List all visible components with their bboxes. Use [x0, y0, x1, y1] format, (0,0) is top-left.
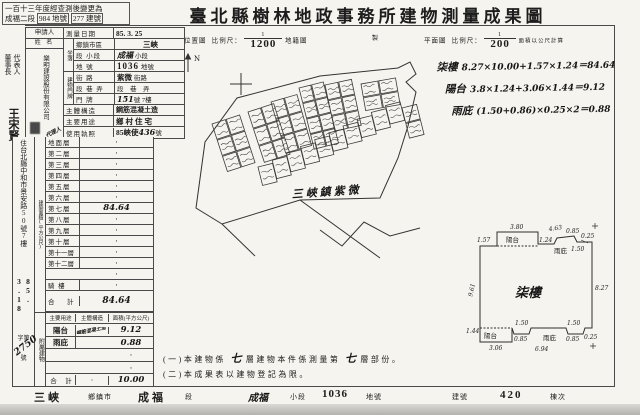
floor-label: 地面層	[46, 137, 80, 147]
parcel-value: 1036 地號	[115, 61, 184, 71]
floor-value: ·	[80, 214, 153, 224]
footnotes: (一)本建物係 七 層建物本件係測量第 七 層部份。 (二)本成果表以建物登記為…	[163, 351, 463, 382]
room-label: 柒樓	[515, 285, 543, 301]
annex-area: 0.88	[109, 338, 153, 348]
floor-value: ·	[80, 236, 153, 246]
footer-town-label: 鄉鎮市	[88, 392, 112, 402]
door-suffix: 號 7樓	[134, 97, 152, 104]
annex-header-row: 主要用途 主體構造 面積(平方公尺)	[46, 313, 153, 324]
floor-label: 第八層	[46, 214, 80, 224]
floor-label: 第六層	[46, 192, 80, 202]
footer-building-no: 420	[500, 389, 523, 401]
floor-rows: 地面層· 第二層· 第三層· 第四層· 第五層· 第六層· 第七層84.64 第…	[46, 137, 153, 312]
floor-label: 第二層	[46, 148, 80, 158]
annex-row-balcony: 陽台 鋼筋混凝土造 9.12	[46, 324, 153, 337]
town-row: 鄉鎮市區 三峽	[74, 39, 184, 50]
road-line-2	[222, 224, 255, 256]
survey-date-label: 測量日期	[64, 28, 114, 38]
footer-section: 成福	[138, 389, 166, 405]
dim-1-24: 1.24	[539, 237, 553, 244]
floor-value: ·	[80, 225, 153, 235]
annex-total-structure: ·	[76, 376, 109, 385]
floor-total-value: 84.64	[80, 296, 153, 306]
company-seal	[30, 122, 40, 134]
annex-area: ·	[109, 350, 153, 360]
applicant-name-col2: 股份有限公司	[41, 81, 49, 120]
applicant-name-col1: 樂明建設	[41, 55, 49, 81]
floor-label: 第七層	[46, 203, 80, 213]
dim-0-85-top: 0.85	[566, 228, 580, 235]
street-row: 街 路 紫微 街路	[74, 72, 184, 83]
footer-subsection: 成福	[248, 389, 268, 404]
floor-plan: 陽台 陽台 雨庇 雨庇 柒樓 1.57 3.80 1.24 4.63 0.85 …	[435, 218, 635, 363]
dim-0-85-b2: 0.85	[566, 336, 580, 343]
dim-0-85-b1: 0.85	[514, 336, 528, 343]
residence-label: 住	[13, 137, 34, 146]
street-label: 街 路	[74, 72, 115, 82]
floor-value: ·	[80, 269, 153, 279]
balcony-top-label: 陽台	[506, 235, 519, 244]
license-prefix: 85峽使	[116, 128, 139, 137]
footer-subsection-label: 小段	[290, 392, 306, 402]
door-group: 建物門牌 街 路 紫微 街路 段 巷 弄 段 巷 弄 門 牌 151號 7樓	[64, 72, 184, 105]
calc-formula-balcony: 3.8×1.24+3.06×1.44＝9.12	[470, 83, 605, 95]
amendment-parcel: 984 地號	[37, 13, 69, 24]
annex-row-blank: ·	[46, 349, 153, 362]
lane-row: 段 巷 弄 段 巷 弄	[74, 83, 184, 94]
building-units	[212, 78, 424, 186]
calc-line-7f: 柒樓8.27×10.00+1.57×1.24＝84.64	[436, 54, 636, 79]
street-name: 紫微	[117, 73, 132, 82]
area-table: 住 台北縣中和市景安路50號7樓 85. 3.18 字第 2750 號 建築面積…	[12, 137, 154, 387]
usage-row: 主要用途 鄉村住宅	[64, 116, 184, 127]
survey-document-page: 一百十三年度經查測後變更為 成福二段 984 地號 277 建號 臺北縣樹林地政…	[0, 0, 640, 415]
footnote-1: (一)本建物係 七 層建物本件係測量第 七 層部份。	[163, 351, 463, 367]
structure-label: 主體構造	[64, 105, 114, 115]
section-name: 成福	[117, 50, 133, 60]
drawn-by-label: 製	[372, 33, 379, 42]
section-suffix: 小段	[135, 53, 148, 60]
door-group-label: 建物門牌	[64, 72, 74, 104]
footnote-1-mid: 層建物本件係測量第	[246, 355, 341, 364]
rep-title-2: 董事長	[4, 54, 12, 106]
floor-value: ·	[80, 170, 153, 180]
annex-header-use: 主要用途	[46, 314, 76, 322]
footnote-2: (二)本成果表以建物登記為限。	[163, 367, 463, 382]
floor-label: 第三層	[46, 159, 80, 169]
door-value: 151號 7樓	[115, 94, 184, 104]
location-group: 坐落 鄉鎮市區 三峽 段 小段 成福 小段 地 號 1036 地號	[64, 39, 184, 72]
amendment-building-no: 277 建號	[71, 13, 103, 24]
parcel-row: 地 號 1036 地號	[74, 61, 184, 71]
floor-value: ·	[80, 258, 153, 268]
floor-area-section: 建築面積(平方公尺) 地面層· 第二層· 第三層· 第四層· 第五層· 第六層·…	[35, 137, 153, 312]
annex-row-canopy: 雨庇 0.88	[46, 337, 153, 350]
floor-total-label: 合 計	[46, 296, 80, 306]
applicant-column: 申請人 姓 名 樂明建設 股份有限公司 代理人	[26, 28, 64, 138]
location-group-label: 坐落	[64, 39, 74, 71]
section-row: 段 小段 成福 小段	[74, 50, 184, 61]
door-number: 151	[117, 94, 134, 104]
floor-value: ·	[80, 280, 153, 290]
dim-1-50-top: 1.50	[571, 246, 585, 253]
floor-total-row: 合 計 84.64	[46, 291, 153, 312]
lane-value: 段 巷 弄	[115, 83, 184, 93]
plan-scale-label: 比例尺：	[452, 37, 482, 44]
annex-area: ·	[109, 363, 153, 373]
calc-formula-canopy: (1.50+0.86)×0.25×2＝0.88	[476, 105, 610, 117]
annex-area: 9.12	[109, 325, 153, 335]
floor-label: 騎 樓	[46, 280, 80, 290]
receive-date-stamp: 85. 3.18	[15, 277, 33, 333]
amendment-note: 一百十三年度經查測後變更為 成福二段 984 地號 277 建號	[2, 2, 130, 25]
floor-label: 第十二層	[46, 258, 80, 268]
amendment-section: 成福二段	[5, 14, 35, 23]
location-map-label: 位置圖	[184, 37, 207, 44]
location-map: N 三峽鎮紫微	[180, 46, 442, 276]
cadastral-map-label: 地籍圖	[285, 37, 308, 44]
annex-header-area: 面積(平方公尺)	[109, 314, 153, 322]
annex-total-row: 合 計 · 10.00	[46, 374, 153, 386]
footnote-1-post: 層部份。	[360, 355, 402, 364]
floor-plan-label: 平面圖	[424, 37, 447, 44]
canopy-top-label: 雨庇	[554, 246, 568, 255]
annex-group-label: 附屬建物	[35, 313, 46, 386]
floor-value: ·	[80, 192, 153, 202]
calc-formula-7f: 8.27×10.00+1.57×1.24＝84.64	[462, 61, 616, 74]
dim-3-80: 3.80	[510, 224, 524, 231]
floor-area-group-label: 建築面積(平方公尺)	[35, 137, 46, 312]
amendment-note-line2: 成福二段 984 地號 277 建號	[5, 14, 127, 24]
dim-8-27: 8.27	[595, 285, 609, 292]
applicant-name: 樂明建設 股份有限公司	[40, 51, 50, 123]
floor-label: 第四層	[46, 170, 80, 180]
street-suffix: 街路	[134, 75, 147, 82]
dim-4-63: 4.63	[547, 224, 562, 233]
floor-value: ·	[80, 159, 153, 169]
usage-value: 鄉村住宅	[114, 116, 184, 127]
floor-value: ·	[80, 137, 153, 147]
lane-label: 段 巷 弄	[74, 83, 115, 93]
address-column: 住 台北縣中和市景安路50號7樓 85. 3.18 字第 2750 號	[13, 137, 35, 386]
applicant-subheader: 姓 名	[26, 39, 63, 49]
area-unit-note: 面積以公尺計算	[519, 38, 565, 44]
license-suffix: 號	[155, 130, 162, 137]
town-value: 三峽	[115, 39, 184, 50]
plan-scale-fraction: 1200	[484, 32, 516, 50]
footer-town: 三峽	[34, 389, 62, 405]
rep-title-1: 代表人	[13, 54, 21, 106]
door-row: 門 牌 151號 7樓	[74, 94, 184, 104]
canopy-bottom-label: 雨庇	[543, 333, 557, 342]
area-calculations: 柒樓8.27×10.00+1.57×1.24＝84.64 陽台3.8×1.24+…	[436, 54, 637, 123]
section-label: 段 小段	[74, 50, 115, 60]
license-number: 436	[139, 127, 156, 137]
footnote-1-pre: (一)本建物係	[163, 355, 226, 364]
footer-unit-label: 棟次	[550, 392, 566, 402]
floor-value: ·	[80, 181, 153, 191]
border-top	[25, 25, 615, 26]
floor-label: 第十層	[46, 236, 80, 246]
footnote-1-floor: 七	[230, 352, 241, 365]
license-label: 使用執照	[64, 128, 114, 138]
annex-total-label: 合 計	[46, 375, 76, 385]
dim-1-50-b1: 1.50	[515, 320, 529, 327]
usage-label: 主要用途	[64, 116, 114, 126]
footer-section-label: 段	[185, 392, 193, 402]
dim-0-25-top: 0.25	[581, 233, 595, 240]
dim-0-25-b: 0.25	[584, 334, 598, 341]
balcony-bottom-label: 陽台	[484, 331, 497, 340]
survey-date-row: 測量日期 85. 3. 25	[64, 28, 184, 39]
door-label: 門 牌	[74, 94, 115, 104]
footer-building-label: 建號	[452, 392, 468, 402]
footnote-1-floor2: 七	[345, 352, 356, 365]
floor-value: ·	[80, 247, 153, 257]
applicant-header: 申請人	[26, 28, 63, 39]
floor-plan-scale: 平面圖 比例尺： 1200 面積以公尺計算	[424, 32, 564, 50]
annex-header-structure: 主體構造	[76, 314, 109, 322]
info-table: 申請人 姓 名 樂明建設 股份有限公司 代理人 測量日期 85. 3. 25 坐…	[25, 27, 185, 139]
annex-structure-text: 鋼筋混凝土造	[76, 327, 106, 334]
annex-total-value: 10.00	[109, 375, 153, 385]
calc-label-canopy: 雨庇	[451, 105, 472, 117]
floor-value-7f: 84.64	[80, 203, 153, 213]
applicant-address: 台北縣中和市景安路50號7樓	[19, 146, 28, 274]
location-scale-label: 比例尺：	[212, 37, 242, 44]
floor-label: 第五層	[46, 181, 80, 191]
annex-use: 陽台	[46, 325, 76, 336]
annex-row-blank: ·	[46, 362, 153, 375]
dim-6-94: 6.94	[535, 346, 549, 353]
north-arrow-head	[186, 54, 191, 59]
street-value: 紫微 街路	[115, 72, 184, 83]
parcel-suffix: 地號	[141, 64, 154, 71]
footer-parcel: 1036	[322, 388, 348, 400]
dim-1-57: 1.57	[477, 237, 491, 244]
survey-date-value: 85. 3. 25	[114, 29, 184, 38]
floor-label: 第九層	[46, 225, 80, 235]
footer-parcel-label: 地號	[366, 392, 382, 402]
parcel-number: 1036	[117, 61, 139, 71]
north-label: N	[194, 55, 200, 63]
section-value: 成福 小段	[115, 50, 184, 61]
annex-use: 雨庇	[46, 337, 76, 348]
representative-label: 代表人 董事長	[3, 54, 22, 106]
dim-9-61: 9.61	[467, 283, 477, 298]
structure-row: 主體構造 鋼筋混凝土造	[64, 105, 184, 116]
road-line-1	[300, 200, 380, 258]
scan-edge	[0, 404, 640, 415]
scale-denominator: 200	[484, 38, 516, 50]
calc-label-balcony: 陽台	[445, 83, 466, 95]
dim-3-06: 3.06	[489, 345, 503, 352]
calc-line-canopy: 雨庇(1.50+0.86)×0.25×2＝0.88	[437, 98, 637, 123]
parcel-label: 地 號	[74, 61, 115, 71]
page-title: 臺北縣樹林地政事務所建物測量成果圖	[138, 2, 598, 27]
structure-value: 鋼筋混凝土造	[114, 105, 184, 115]
floor-label: 第十一層	[46, 247, 80, 257]
annex-section: 附屬建物 主要用途 主體構造 面積(平方公尺) 陽台 鋼筋混凝土造 9.12 雨…	[35, 312, 153, 386]
town-label: 鄉鎮市區	[74, 39, 115, 49]
annex-structure: 鋼筋混凝土造	[76, 327, 109, 334]
dim-1-44: 1.44	[466, 328, 480, 335]
dim-1-50-b2: 1.50	[567, 320, 581, 327]
floor-value: ·	[80, 148, 153, 158]
